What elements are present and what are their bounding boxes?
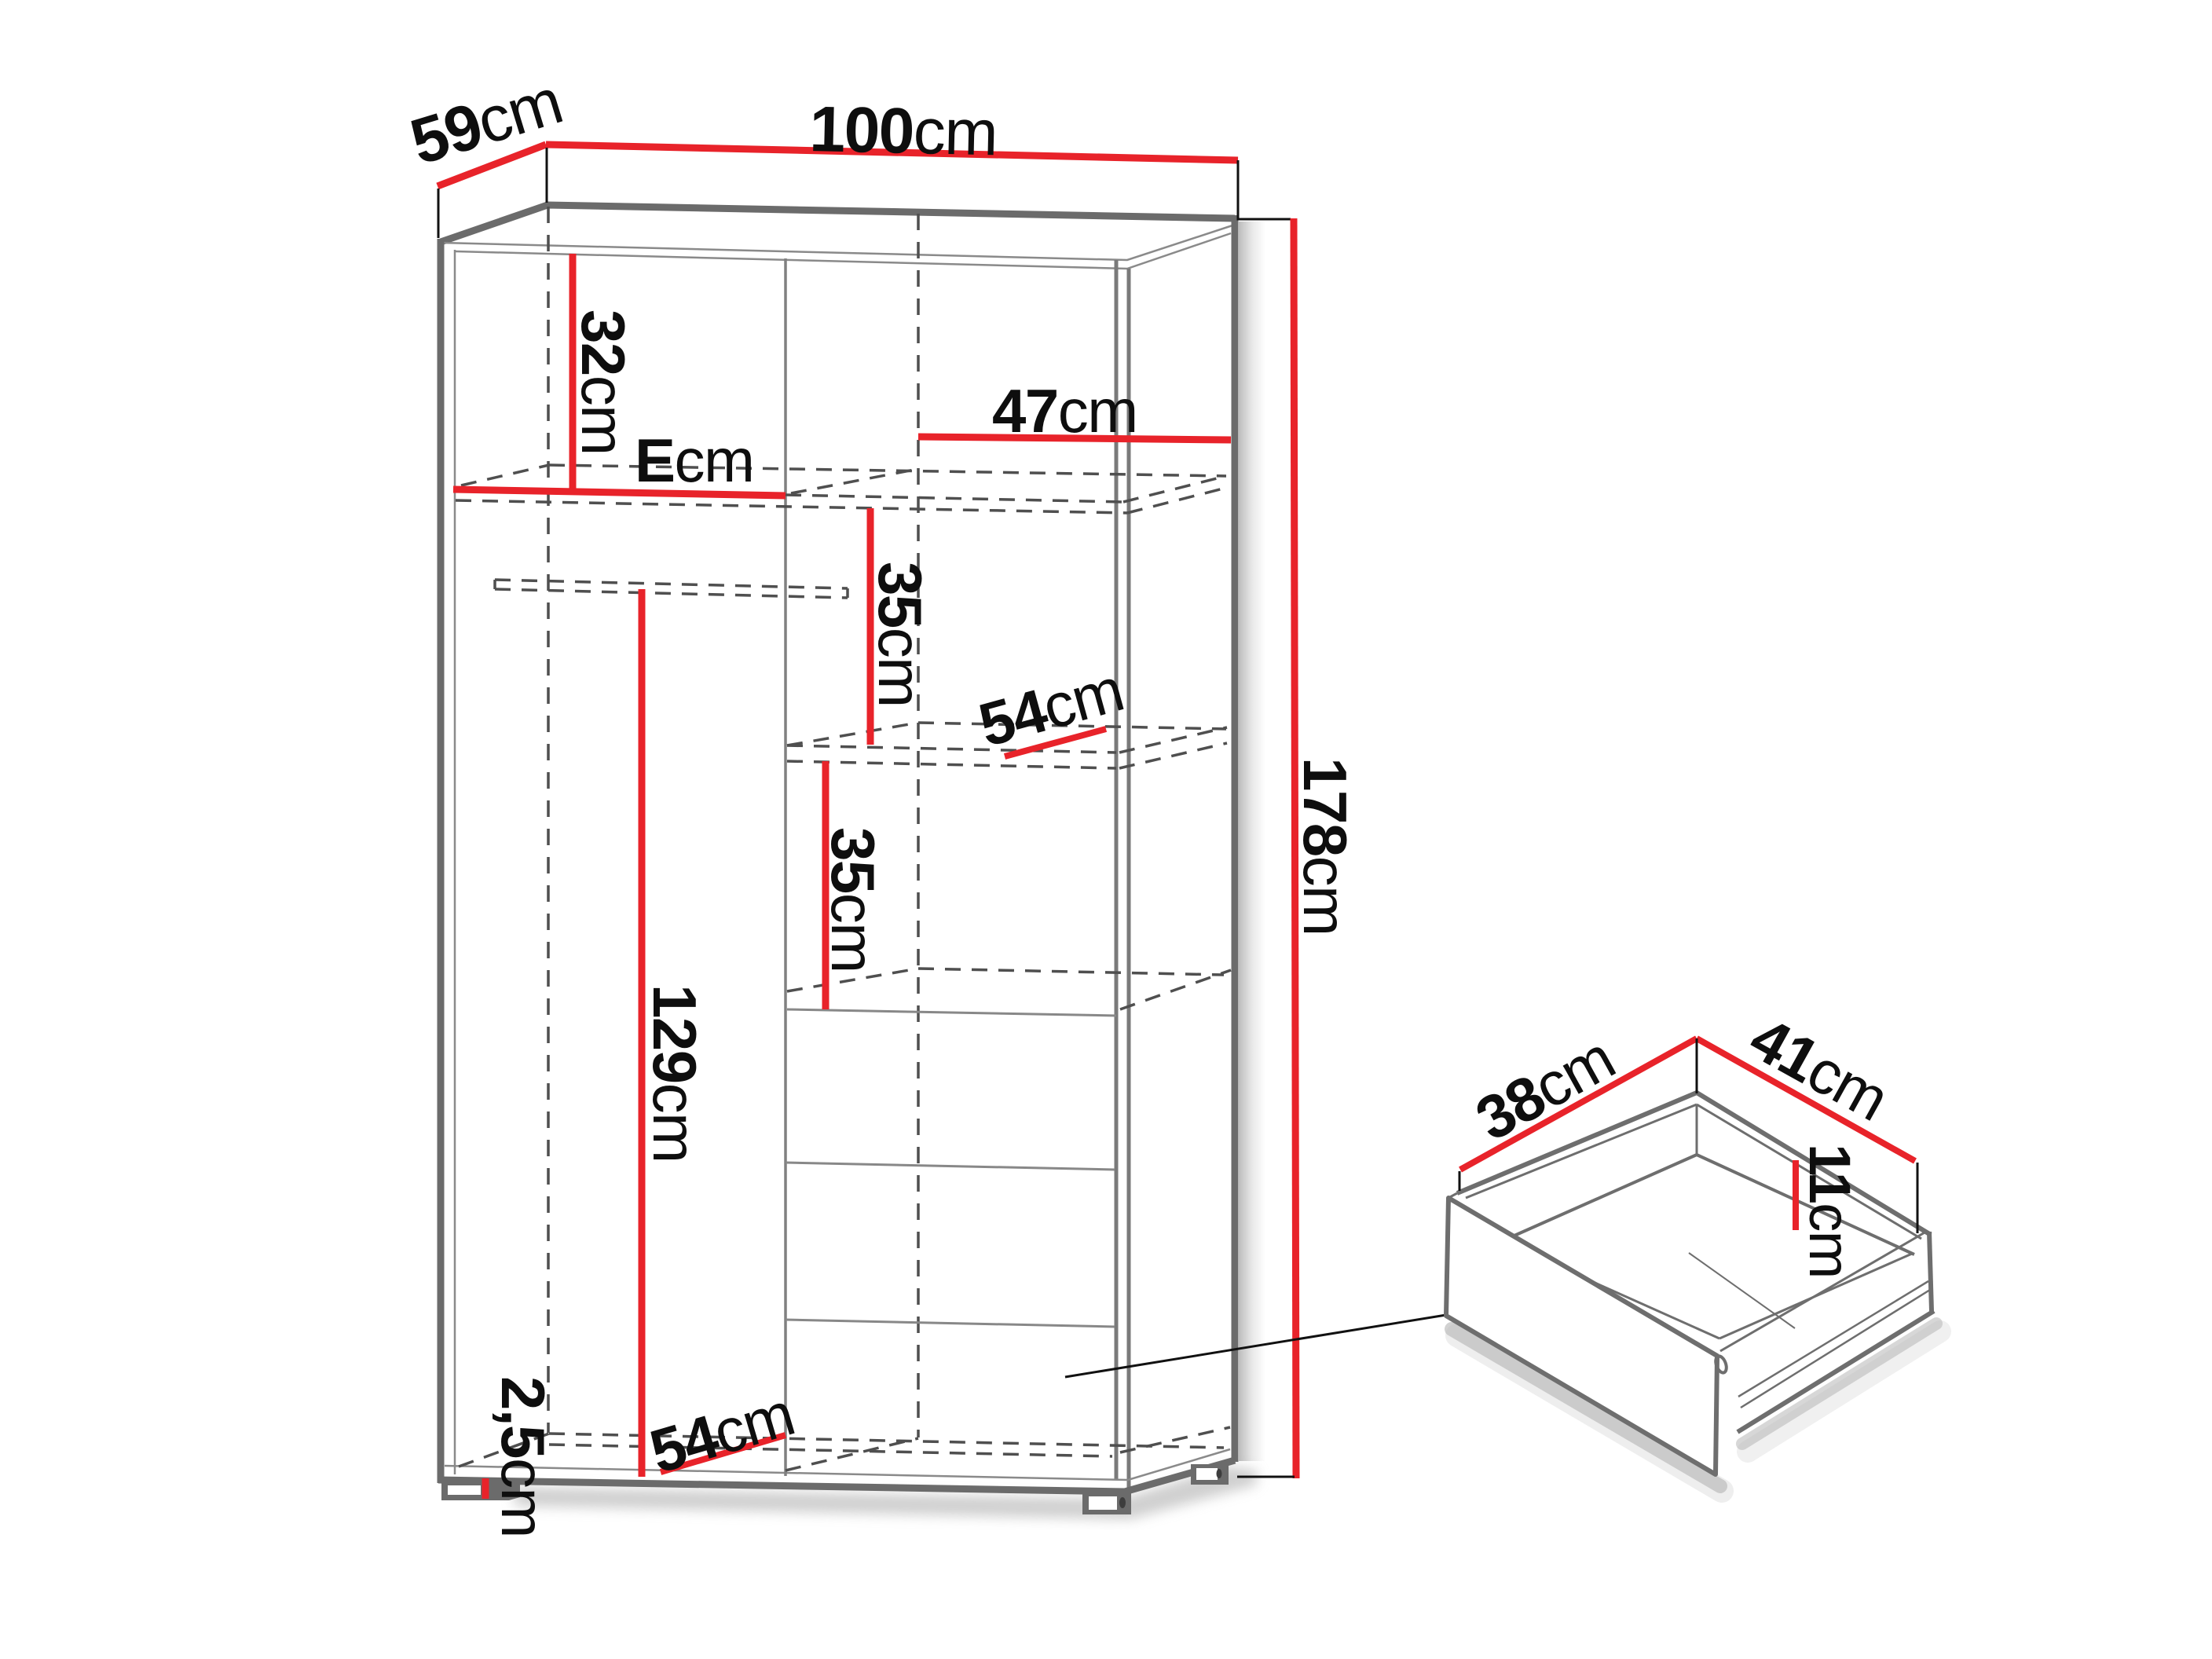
svg-text:Ecm: Ecm: [635, 426, 754, 495]
svg-text:11cm: 11cm: [1797, 1144, 1862, 1278]
svg-text:129cm: 129cm: [640, 984, 709, 1163]
svg-text:35cm: 35cm: [866, 562, 935, 707]
svg-text:32cm: 32cm: [569, 309, 638, 455]
svg-text:2,5cm: 2,5cm: [489, 1376, 558, 1537]
svg-text:35cm: 35cm: [819, 827, 888, 972]
svg-text:100cm: 100cm: [809, 93, 998, 169]
svg-text:47cm: 47cm: [992, 376, 1137, 445]
svg-text:178cm: 178cm: [1291, 757, 1360, 936]
